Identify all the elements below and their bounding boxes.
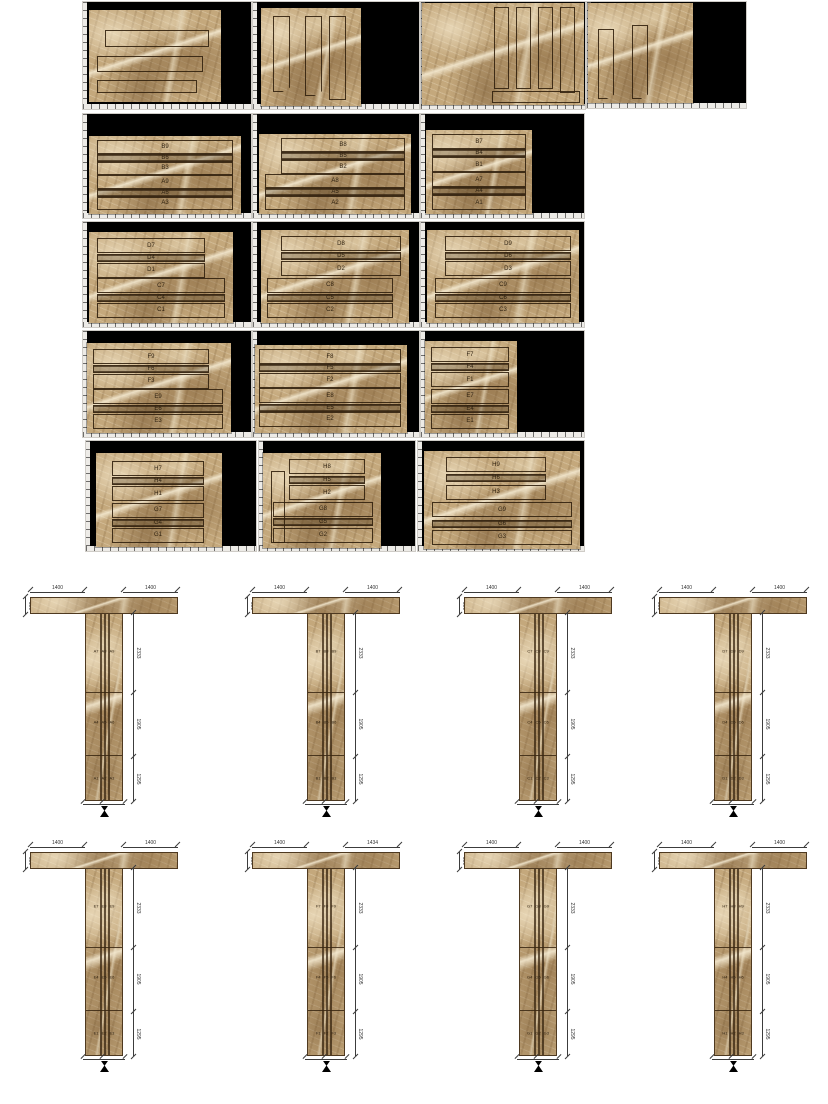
strip-label: F7 [466, 352, 473, 358]
strip-label: A1 [475, 200, 482, 206]
slab-strip: B2 [281, 160, 405, 174]
slab-strip: C9 [435, 278, 571, 293]
marble-slab: H7 H4 H1 G7 G4 G1 [96, 453, 222, 547]
joint-line [86, 755, 122, 756]
joint-line [733, 869, 735, 1055]
slab-strip: E8 [259, 388, 401, 403]
dim-side: 2333 [762, 613, 763, 692]
strip-label: C6 [499, 295, 507, 301]
strip-label: C5 [326, 295, 334, 301]
cut-sheet: H7 H4 H1 G7 G4 G1 [85, 440, 257, 552]
strip-label: F3 [147, 378, 154, 384]
strip-label: B6 [161, 155, 168, 161]
t-column: G7G8G9 G4G5G6 G1G2G3 [519, 868, 557, 1056]
slab-strip: D2 [281, 261, 401, 276]
slab-strip: D6 [445, 252, 571, 260]
t-elevation-A: 1400 1400 300 A7A8A9 A4A5A6 A1A2A3 2333 … [28, 588, 180, 820]
slab-strip: B9 [97, 140, 233, 154]
strip-label: G7 [154, 507, 162, 513]
strip-label: D9 [504, 241, 512, 247]
slab-strip: H7 [112, 461, 204, 476]
slab-strip: G3 [432, 530, 572, 545]
joint-line [326, 614, 328, 800]
strip-label: A4 [475, 188, 482, 194]
sheet-ruler-left [83, 222, 87, 327]
strip-label: C1 [157, 307, 165, 313]
slab-strip: C7 [97, 278, 225, 293]
joint-line [715, 755, 751, 756]
strip-label: A2 [331, 200, 338, 206]
strip-label: D7 [147, 243, 155, 249]
panel-codes: G7G8G9 [520, 904, 556, 909]
dim-text: 1295 [357, 1028, 363, 1039]
panel-codes: D7D8D9 [715, 649, 751, 654]
panel-codes: F1F2F3 [308, 1030, 344, 1035]
dim-side: 2333 [567, 613, 568, 692]
joint-line [308, 692, 344, 693]
strip-label: A8 [331, 178, 338, 184]
dim-text: 1905 [357, 718, 363, 729]
cut-outline [105, 30, 209, 47]
dim-bar-end: 300 [654, 852, 655, 869]
strip-label: B8 [339, 142, 346, 148]
strip-label: G1 [154, 532, 162, 538]
panel-codes: F4F5F6 [308, 974, 344, 979]
strip-label: F5 [326, 365, 333, 371]
strip-label: B9 [161, 144, 168, 150]
slab-strip: A7 [432, 172, 526, 187]
strip-label: E5 [326, 405, 333, 411]
cut-outline [492, 91, 580, 103]
slab-strip: B4 [432, 149, 526, 157]
dim-top-left: 1400 [464, 847, 519, 848]
dim-top-left: 1400 [252, 592, 307, 593]
panel-codes: G4G5G6 [520, 974, 556, 979]
joint-line [308, 1010, 344, 1011]
dim-text: 1400 [345, 585, 400, 591]
dim-text: 2333 [569, 647, 575, 658]
strip-label: B4 [475, 150, 482, 156]
panel-codes: C7C8C9 [520, 649, 556, 654]
panel-codes: C4C5C6 [520, 719, 556, 724]
marble-slab: F7 F4 F1 E7 E4 E1 [425, 341, 517, 433]
dim-text: 1400 [123, 585, 178, 591]
dim-top-right: 1400 [752, 592, 807, 593]
cut-sheet [252, 1, 420, 110]
strip-label: C4 [157, 295, 165, 301]
joint-line [330, 869, 332, 1055]
strip-label: G3 [498, 534, 506, 540]
dim-bar-end: 300 [25, 597, 26, 614]
slab-strip: E1 [431, 414, 509, 429]
dim-side: 1295 [762, 1011, 763, 1056]
panel-codes: F7F8F9 [308, 904, 344, 909]
strip-label: H7 [154, 466, 162, 472]
strip-label: H1 [154, 491, 162, 497]
slab-strip: H1 [112, 486, 204, 501]
sheet-ruler-left [86, 441, 90, 551]
cut-sheet: H9 H6 H3 G9 G6 G3 [417, 440, 585, 552]
t-column: D7D8D9 D4D5D6 D1D2D3 [714, 613, 752, 801]
dim-bottom [517, 1059, 559, 1060]
marble-slab: B8 B5 B2 A8 A5 A2 [259, 134, 411, 214]
strip-label: F4 [466, 364, 473, 370]
joint-line [520, 755, 556, 756]
joint-line [308, 947, 344, 948]
strip-label: G9 [498, 507, 506, 513]
dim-side: 1295 [567, 756, 568, 801]
dim-bar-end: 300 [25, 852, 26, 869]
slab-strip: D4 [97, 254, 205, 262]
strip-label: D1 [147, 267, 155, 273]
cut-outline [598, 29, 614, 99]
marble-slab: D8 D5 D2 C8 C5 C2 [261, 230, 409, 323]
dim-top-right: 1400 [557, 847, 612, 848]
slab-strip: G6 [432, 520, 572, 528]
sheet-ruler-left [83, 2, 87, 109]
t-beam [659, 852, 807, 869]
dim-side: 2333 [762, 868, 763, 947]
drawing-canvas: B9 B6 B3 A9 A6 A3 B8 B5 B2 A8 A5 A2 [0, 0, 828, 1104]
dim-text: 1400 [464, 585, 519, 591]
dim-text: 2333 [569, 902, 575, 913]
strip-label: A3 [161, 200, 168, 206]
strip-label: G4 [154, 520, 162, 526]
cut-outline [97, 80, 197, 93]
joint-line [729, 869, 731, 1055]
dim-side: 1905 [762, 947, 763, 1011]
panel-codes: B1B2B3 [308, 775, 344, 780]
strip-label: E9 [154, 394, 161, 400]
slab-strip: A1 [432, 195, 526, 210]
dim-side: 2333 [567, 868, 568, 947]
t-beam [30, 597, 178, 614]
cut-sheet: D7 D4 D1 C7 C4 C1 [82, 221, 252, 328]
section-marker-icon [100, 806, 109, 817]
dim-text: 2333 [135, 902, 141, 913]
joint-line [520, 692, 556, 693]
dim-text: 1295 [569, 1028, 575, 1039]
t-elevation-G: 1400 1400 300 G7G8G9 G4G5G6 G1G2G3 2333 … [462, 843, 614, 1075]
t-column: E7E8E9 E4E5E6 E1E2E3 [85, 868, 123, 1056]
slab-strip: A6 [97, 189, 233, 197]
dim-text: 1400 [659, 840, 714, 846]
strip-label: D8 [337, 241, 345, 247]
t-column: A7A8A9 A4A5A6 A1A2A3 [85, 613, 123, 801]
strip-label: H3 [492, 489, 500, 495]
cut-sheet [586, 1, 747, 109]
dim-side: 1295 [133, 756, 134, 801]
dim-bottom [83, 1059, 125, 1060]
joint-line [534, 614, 536, 800]
panel-codes: A4A5A6 [86, 719, 122, 724]
slab-strip: C5 [267, 294, 393, 302]
slab-strip: B6 [97, 154, 233, 162]
strip-label: B3 [161, 165, 168, 171]
strip-label: F8 [326, 354, 333, 360]
strip-label: B5 [339, 153, 346, 159]
marble-slab: F9 F6 F3 E9 E6 E3 [87, 343, 231, 433]
t-column: B7B8B9 B4B5B6 B1B2B3 [307, 613, 345, 801]
slab-strip: G1 [112, 528, 204, 543]
joint-line [104, 614, 106, 800]
strip-label: B2 [339, 164, 346, 170]
slab-strip: D1 [97, 263, 205, 278]
slab-strip: E4 [431, 405, 509, 413]
dim-text: 1400 [252, 840, 307, 846]
t-elevation-F: 1400 1434 300 F7F8F9 F4F5F6 F1F2F3 2333 … [250, 843, 402, 1075]
cut-outline [516, 7, 531, 89]
dim-bar-end: 300 [654, 597, 655, 614]
strip-label: H8 [323, 464, 331, 470]
dim-text: 1905 [135, 718, 141, 729]
dim-text: 1295 [357, 773, 363, 784]
joint-line [104, 869, 106, 1055]
marble-slab: B9 B6 B3 A9 A6 A3 [89, 136, 241, 214]
slab-strip: F6 [93, 365, 209, 373]
dim-top-right: 1400 [345, 592, 400, 593]
slab-strip: F8 [259, 349, 401, 364]
dim-text: 1400 [123, 840, 178, 846]
t-beam [252, 597, 400, 614]
dim-text: 1400 [557, 840, 612, 846]
slab-strip: B8 [281, 138, 405, 152]
joint-line [330, 614, 332, 800]
section-marker-icon [100, 1061, 109, 1072]
joint-line [108, 869, 110, 1055]
strip-label: A7 [475, 177, 482, 183]
sheet-ruler-left [253, 114, 257, 218]
dim-text: 1400 [557, 585, 612, 591]
strip-label: E1 [466, 418, 473, 424]
strip-label: F2 [326, 377, 333, 383]
dim-side: 1905 [133, 692, 134, 756]
slab-strip: A5 [265, 188, 405, 196]
dim-side: 1295 [133, 1011, 134, 1056]
strip-label: G2 [319, 532, 327, 538]
slab-strip: D3 [445, 261, 571, 276]
slab-strip: D5 [281, 252, 401, 260]
strip-label: G6 [498, 521, 506, 527]
marble-slab [89, 10, 221, 102]
dim-text: 1400 [752, 840, 807, 846]
joint-line [542, 614, 544, 800]
strip-label: D4 [147, 255, 155, 261]
t-beam [30, 852, 178, 869]
t-beam [464, 597, 612, 614]
slab-strip: E2 [259, 412, 401, 427]
joint-line [322, 614, 324, 800]
panel-codes: D1D2D3 [715, 775, 751, 780]
cut-sheet: F7 F4 F1 E7 E4 E1 [420, 330, 585, 438]
dim-top-right: 1400 [123, 847, 178, 848]
joint-line [729, 614, 731, 800]
t-elevation-B: 1400 1400 300 B7B8B9 B4B5B6 B1B2B3 2333 … [250, 588, 402, 820]
dim-side: 1905 [567, 692, 568, 756]
dim-bottom [712, 1059, 754, 1060]
sheet-ruler-bottom [587, 103, 746, 108]
slab-strip: E7 [431, 389, 509, 404]
slab-strip: H4 [112, 477, 204, 485]
panel-codes: E7E8E9 [86, 904, 122, 909]
dim-top-left: 1400 [30, 847, 85, 848]
strip-label: D6 [504, 253, 512, 259]
dim-text: 1905 [764, 973, 770, 984]
slab-strip: F7 [431, 347, 509, 362]
strip-label: E2 [326, 416, 333, 422]
dim-text: 1905 [764, 718, 770, 729]
cut-sheet [82, 1, 252, 110]
joint-line [326, 869, 328, 1055]
slab-strip: D7 [97, 238, 205, 253]
strip-label: G5 [319, 519, 327, 525]
marble-slab [422, 3, 584, 105]
slab-strip: H5 [289, 476, 365, 484]
dim-side: 1295 [355, 1011, 356, 1056]
cut-outline [305, 16, 322, 96]
dim-text: 2333 [764, 902, 770, 913]
dim-text: 1295 [764, 1028, 770, 1039]
dim-side: 1905 [762, 692, 763, 756]
slab-strip: H9 [446, 457, 546, 472]
dim-top-right: 1434 [345, 847, 400, 848]
slab-strip: G8 [273, 502, 373, 517]
dim-text: 1905 [357, 973, 363, 984]
joint-line [86, 1010, 122, 1011]
joint-line [715, 1010, 751, 1011]
dim-side: 1905 [355, 692, 356, 756]
marble-slab [261, 8, 361, 106]
slab-strip: F5 [259, 364, 401, 372]
dim-text: 1295 [569, 773, 575, 784]
sheet-ruler-left [421, 222, 425, 327]
t-elevation-D: 1400 1400 300 D7D8D9 D4D5D6 D1D2D3 2333 … [657, 588, 809, 820]
dim-bar-end: 300 [247, 852, 248, 869]
dim-top-right: 1400 [123, 592, 178, 593]
panel-codes: A7A8A9 [86, 649, 122, 654]
dim-top-left: 1400 [659, 592, 714, 593]
slab-strip: H8 [289, 459, 365, 474]
dim-text: 2333 [357, 647, 363, 658]
joint-line [108, 614, 110, 800]
t-column: C7C8C9 C4C5C6 C1C2C3 [519, 613, 557, 801]
sheet-ruler-left [418, 441, 422, 551]
joint-line [100, 869, 102, 1055]
panel-codes: D4D5D6 [715, 719, 751, 724]
panel-codes: B4B5B6 [308, 719, 344, 724]
section-marker-icon [322, 806, 331, 817]
strip-label: D3 [504, 266, 512, 272]
slab-strip: H6 [446, 474, 546, 482]
strip-label: B1 [475, 162, 482, 168]
dim-side: 1905 [133, 947, 134, 1011]
marble-slab: H8 H5 H2 G8 G5 G2 [263, 453, 381, 548]
t-elevation-H: 1400 1400 300 H7H8H9 H4H5H6 H1H2H3 2333 … [657, 843, 809, 1075]
section-marker-icon [729, 1061, 738, 1072]
slab-strip: C2 [267, 303, 393, 318]
slab-strip: E3 [93, 414, 223, 429]
strip-label: C7 [157, 283, 165, 289]
slab-strip: B3 [97, 162, 233, 176]
slab-strip: F9 [93, 349, 209, 364]
slab-strip: G2 [273, 528, 373, 543]
strip-label: F6 [147, 366, 154, 372]
cut-outline [97, 56, 203, 72]
slab-strip: B1 [432, 157, 526, 172]
slab-strip: A8 [265, 174, 405, 188]
cut-outline [632, 25, 648, 99]
cut-sheet: F8 F5 F2 E8 E5 E2 [252, 330, 420, 438]
slab-strip: C4 [97, 294, 225, 302]
strip-label: C2 [326, 307, 334, 313]
strip-label: A6 [161, 190, 168, 196]
strip-label: C9 [499, 282, 507, 288]
joint-line [86, 947, 122, 948]
slab-strip: C6 [435, 294, 571, 302]
dim-side: 2333 [133, 868, 134, 947]
dim-side: 2333 [355, 613, 356, 692]
slab-strip: G9 [432, 502, 572, 517]
panel-codes: E4E5E6 [86, 974, 122, 979]
dim-bar-end: 300 [459, 852, 460, 869]
dim-bottom [517, 804, 559, 805]
t-beam [659, 597, 807, 614]
slab-strip: G5 [273, 518, 373, 526]
joint-line [534, 869, 536, 1055]
marble-slab: F8 F5 F2 E8 E5 E2 [255, 345, 407, 433]
section-marker-icon [534, 806, 543, 817]
marble-slab: B7 B4 B1 A7 A4 A1 [426, 130, 532, 214]
t-beam [252, 852, 400, 869]
joint-line [715, 692, 751, 693]
joint-line [733, 614, 735, 800]
t-elevation-E: 1400 1400 300 E7E8E9 E4E5E6 E1E2E3 2333 … [28, 843, 180, 1075]
cut-sheet: B7 B4 B1 A7 A4 A1 [420, 113, 585, 219]
dim-text: 1434 [345, 840, 400, 846]
joint-line [100, 614, 102, 800]
marble-slab: D7 D4 D1 C7 C4 C1 [89, 232, 233, 323]
panel-codes: A1A2A3 [86, 775, 122, 780]
panel-codes: H4H5H6 [715, 974, 751, 979]
slab-strip: E9 [93, 389, 223, 404]
slab-strip: A3 [97, 197, 233, 211]
joint-line [538, 614, 540, 800]
slab-strip: B7 [432, 134, 526, 149]
slab-strip: A9 [97, 175, 233, 189]
panel-codes: B7B8B9 [308, 649, 344, 654]
dim-bar-end: 300 [247, 597, 248, 614]
slab-strip: C8 [267, 278, 393, 293]
strip-label: H6 [492, 475, 500, 481]
sheet-ruler-left [253, 2, 257, 109]
strip-label: E3 [154, 418, 161, 424]
slab-strip: E6 [93, 405, 223, 413]
dim-text: 1400 [252, 585, 307, 591]
strip-label: G8 [319, 506, 327, 512]
t-column: H7H8H9 H4H5H6 H1H2H3 [714, 868, 752, 1056]
cut-outline [329, 16, 346, 100]
slab-strip: F3 [93, 374, 209, 389]
cut-outline [494, 7, 509, 89]
cut-sheet: F9 F6 F3 E9 E6 E3 [82, 330, 252, 438]
cut-outline [560, 7, 575, 93]
dim-text: 1400 [752, 585, 807, 591]
dim-bottom [83, 804, 125, 805]
dim-text: 1905 [569, 718, 575, 729]
slab-strip: D8 [281, 236, 401, 251]
strip-label: A5 [331, 189, 338, 195]
slab-strip: H2 [289, 485, 365, 500]
